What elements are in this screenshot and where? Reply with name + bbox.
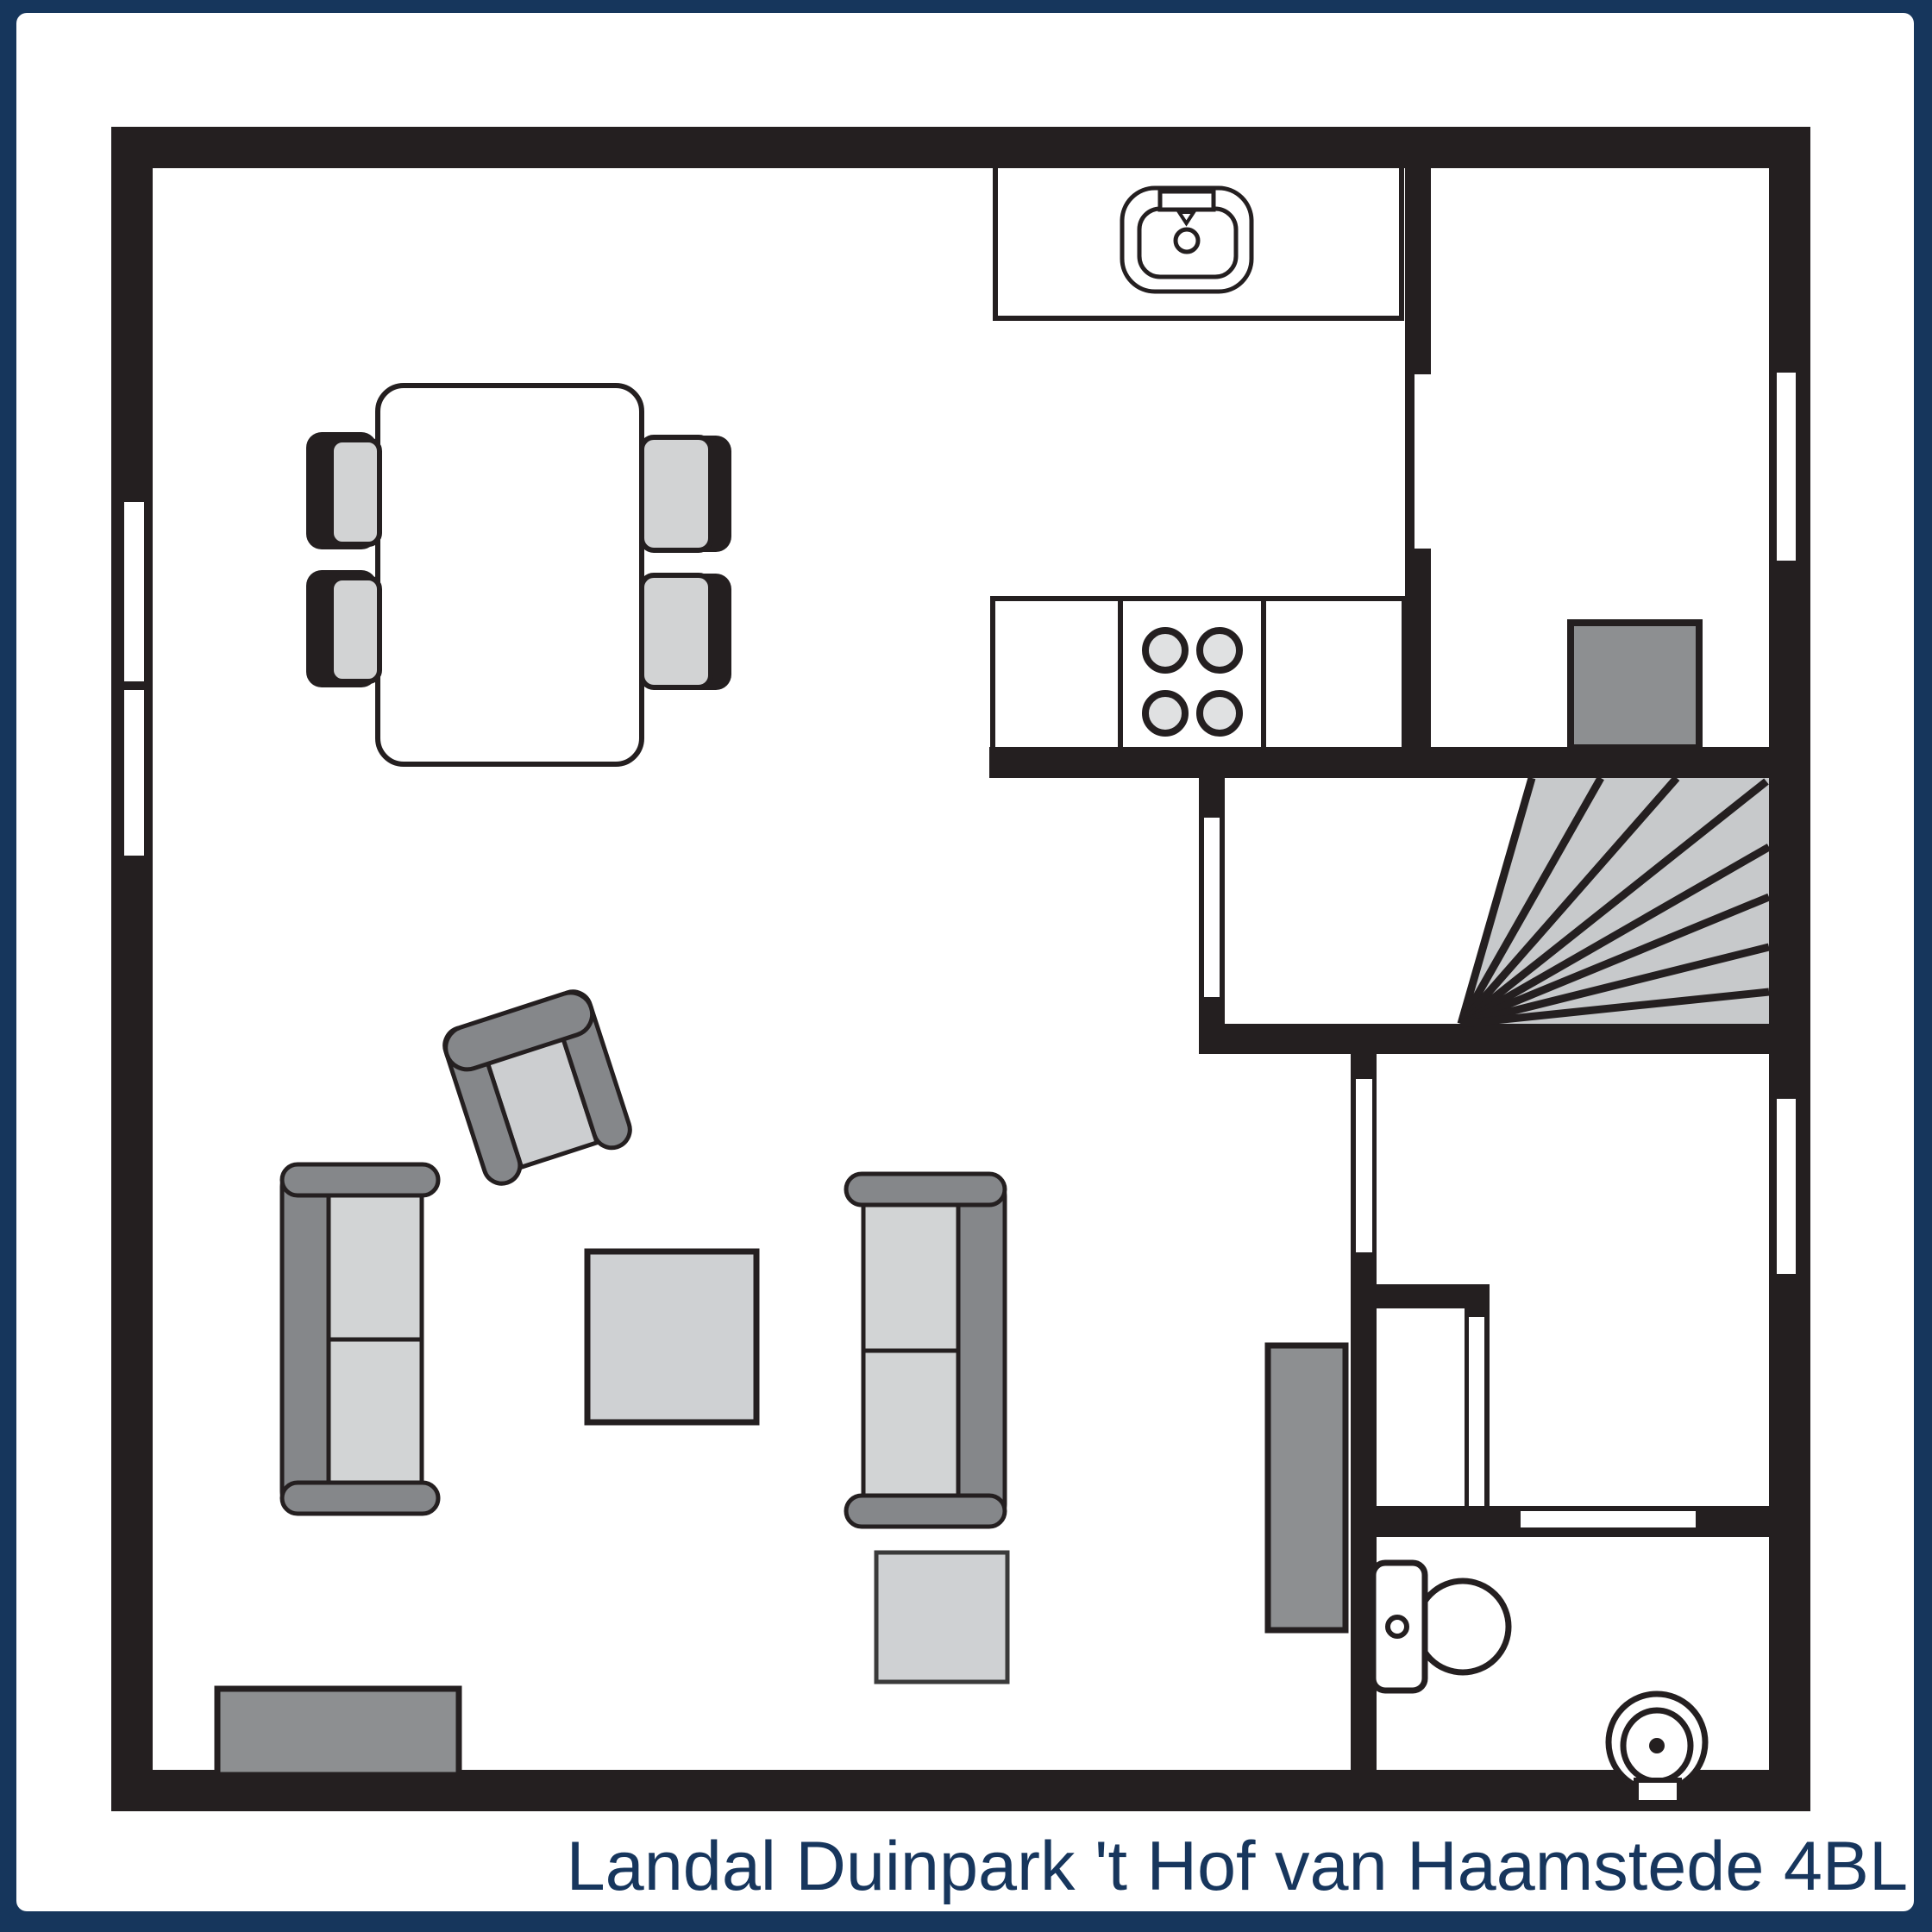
svg-text:Landal Duinpark 't Hof van Haa: Landal Duinpark 't Hof van Haamstede 4BL xyxy=(567,1828,1908,1905)
